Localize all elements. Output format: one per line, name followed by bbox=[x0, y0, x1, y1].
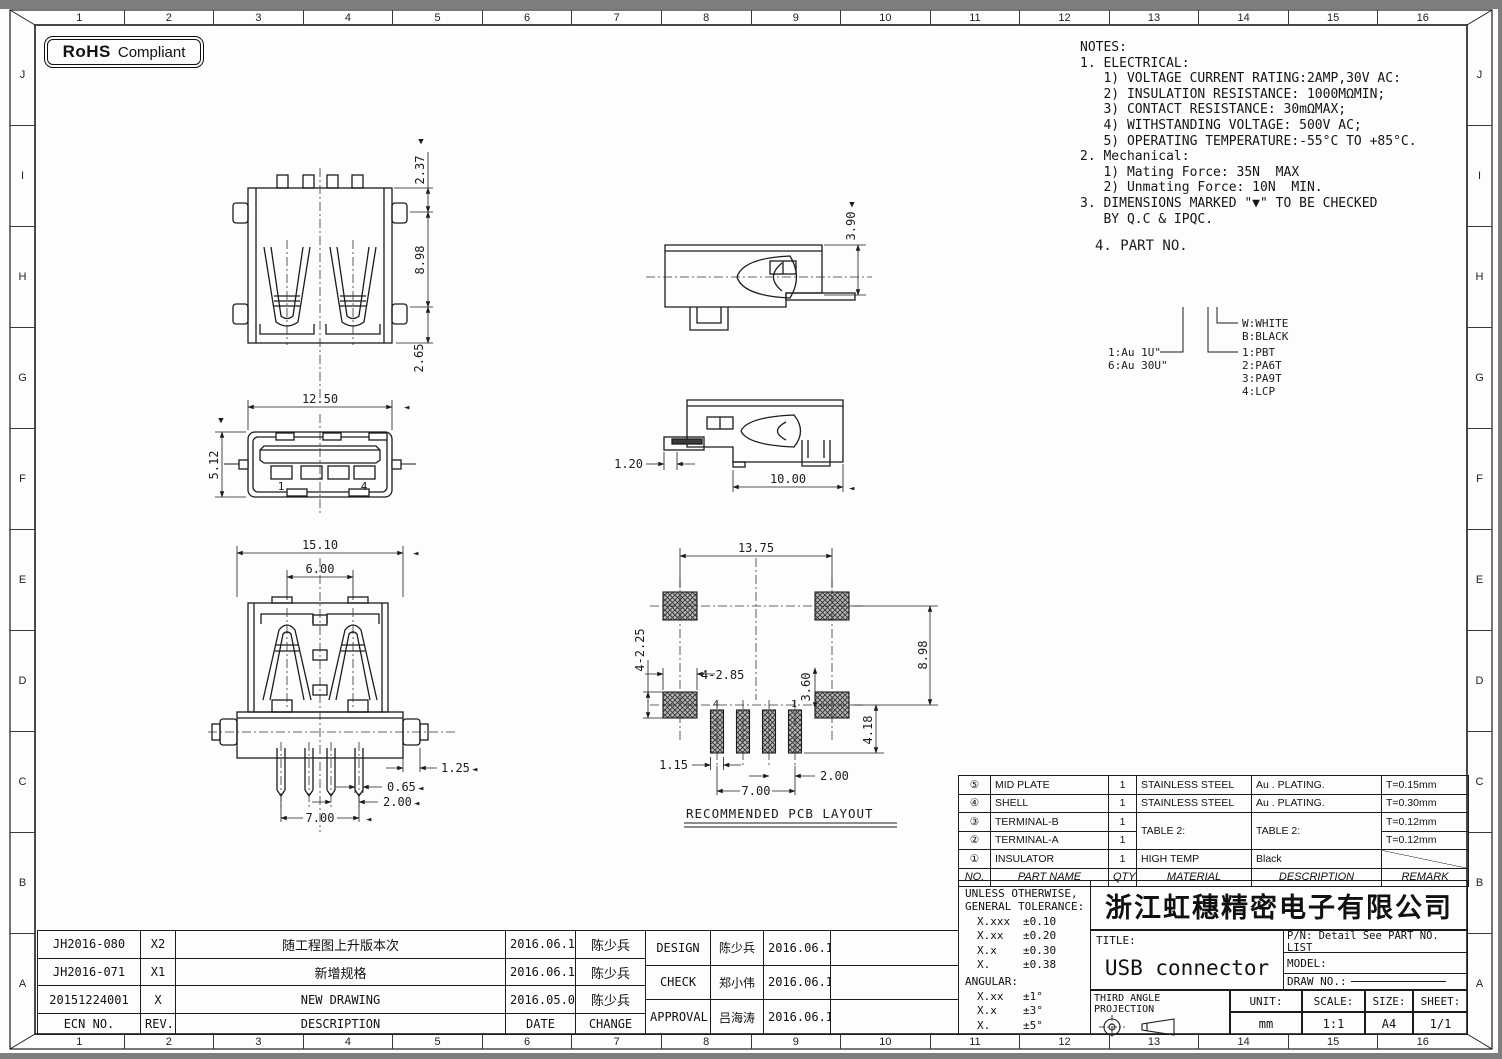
grid-ruler-top: 12345678910111213141516 bbox=[35, 10, 1467, 25]
bom-material-merged: TABLE 2: bbox=[1137, 813, 1252, 850]
pcb-centerlines bbox=[650, 558, 866, 766]
company-name: 浙江虹穗精密电子有限公司 bbox=[1090, 880, 1468, 930]
grid-row-label: G bbox=[10, 328, 35, 429]
dim-6-00: 6.00 bbox=[306, 562, 335, 576]
grid-col-label: 13 bbox=[1110, 10, 1200, 25]
view-front: 1 4 12.50 ◄ 5.12 ▼ bbox=[195, 388, 445, 520]
grid-col-label: 8 bbox=[662, 10, 752, 25]
side-mid-body bbox=[664, 400, 843, 467]
rev-header-ecn: ECN NO. bbox=[38, 1014, 141, 1035]
table-row: ③ TERMINAL-B 1 TABLE 2: TABLE 2: T=0.12m… bbox=[959, 813, 1469, 832]
grid-col-label: 9 bbox=[752, 1034, 842, 1049]
grid-row-label: C bbox=[1467, 732, 1492, 833]
grid-row-label: I bbox=[10, 126, 35, 227]
tol-label: X.x bbox=[977, 1004, 1023, 1017]
dim-1-25: 1.25 bbox=[441, 761, 470, 775]
rev-ecn: JH2016-080 bbox=[38, 931, 141, 959]
grid-col-label: 1 bbox=[35, 1034, 125, 1049]
approval-role: CHECK bbox=[646, 965, 711, 1000]
grid-col-label: 4 bbox=[304, 10, 394, 25]
sheet-label: SHEET: bbox=[1413, 990, 1468, 1012]
revision-table: JH2016-080 X2 随工程图上升版本次 2016.06.15 陈少兵 J… bbox=[37, 930, 646, 1035]
bom-no: ② bbox=[959, 831, 991, 850]
notes-block: NOTES:1. ELECTRICAL: 1) VOLTAGE CURRENT … bbox=[1080, 40, 1480, 227]
side-top-dim-lines bbox=[824, 245, 866, 295]
grid-col-label: 7 bbox=[572, 10, 662, 25]
bom-part: TERMINAL-B bbox=[991, 813, 1109, 832]
dim-2-65: 2.65 bbox=[412, 344, 426, 373]
grid-row-label: H bbox=[10, 227, 35, 328]
tolerance-row: X.x±3° bbox=[977, 1004, 1090, 1017]
note-line: 1. ELECTRICAL: bbox=[1080, 56, 1480, 72]
legend-material-pbt: 1:PBT bbox=[1242, 346, 1275, 359]
tol-value: ±0.30 bbox=[1023, 944, 1056, 957]
rev-header-change: CHANGE bbox=[576, 1014, 646, 1035]
rev-change: 陈少兵 bbox=[576, 986, 646, 1014]
grid-col-label: 2 bbox=[125, 10, 215, 25]
table-row: 20151224001 X NEW DRAWING 2016.05.05 陈少兵 bbox=[38, 986, 646, 1014]
side-top-body bbox=[665, 245, 855, 330]
dim-15-10: 15.10 bbox=[302, 538, 338, 552]
rev-change: 陈少兵 bbox=[576, 931, 646, 959]
dim-10-00: 10.00 bbox=[770, 472, 806, 486]
table-row: DESIGN 陈少兵 2016.06.15 bbox=[646, 931, 959, 966]
unit-label: UNIT: bbox=[1230, 990, 1302, 1012]
pin1-label: 1 bbox=[278, 480, 285, 493]
grid-row-label: D bbox=[10, 631, 35, 732]
view-bottom: 15.10 ◄ 6.00 1.25 ◄ 0.65 ◄ 2.00 ◄ 7.00 ◄ bbox=[195, 540, 480, 835]
grid-col-label: 9 bbox=[752, 10, 842, 25]
tol-value: ±1° bbox=[1023, 990, 1043, 1003]
grid-col-label: 4 bbox=[304, 1034, 394, 1049]
tolerance-row: X.xx±0.20 bbox=[977, 929, 1090, 942]
bom-remark: T=0.12mm bbox=[1382, 831, 1469, 850]
bom-no: ③ bbox=[959, 813, 991, 832]
side-mid-dim-lines bbox=[646, 452, 843, 492]
dim-2-37: 2.37 bbox=[413, 156, 427, 185]
grid-col-label: 11 bbox=[931, 10, 1021, 25]
approval-date: 2016.06.15 bbox=[764, 931, 831, 966]
bom-qty: 1 bbox=[1109, 794, 1137, 813]
tolerance-row: X.x±0.30 bbox=[977, 944, 1090, 957]
dim-2-00-pcb: 2.00 bbox=[820, 769, 849, 783]
grid-col-label: 3 bbox=[214, 1034, 304, 1049]
rev-ecn: 20151224001 bbox=[38, 986, 141, 1014]
rev-ecn: JH2016-071 bbox=[38, 958, 141, 986]
grid-col-label: 8 bbox=[662, 1034, 752, 1049]
rev-date: 2016.05.05 bbox=[506, 986, 576, 1014]
grid-col-label: 16 bbox=[1378, 1034, 1467, 1049]
note-line: 3) CONTACT RESISTANCE: 30mΩMAX; bbox=[1080, 102, 1480, 118]
rev-date: 2016.06.10 bbox=[506, 958, 576, 986]
check-mark: ◄ bbox=[418, 784, 424, 794]
top-view-centerlines bbox=[287, 168, 353, 398]
tolerance-line1: UNLESS OTHERWISE, bbox=[965, 887, 1090, 900]
table-row: ① INSULATOR 1 HIGH TEMP Black bbox=[959, 850, 1469, 869]
grid-col-label: 5 bbox=[393, 10, 483, 25]
approval-table: DESIGN 陈少兵 2016.06.15 CHECK 郑小伟 2016.06.… bbox=[645, 930, 959, 1035]
tolerance-row: X.±5° bbox=[977, 1019, 1090, 1032]
check-mark: ◄ bbox=[404, 403, 410, 413]
dim-3-90: 3.90 bbox=[844, 212, 858, 241]
revision-header-row: ECN NO. REV. DESCRIPTION DATE CHANGE bbox=[38, 1014, 646, 1035]
part-number-legend: 4. PART NO. 1:Au 1U" 6:Au 30U" W:WHITE B… bbox=[1090, 235, 1480, 410]
tol-label: X.xxx bbox=[977, 915, 1023, 928]
legend-material-pa6t: 2:PA6T bbox=[1242, 359, 1282, 372]
rev-date: 2016.06.15 bbox=[506, 931, 576, 959]
grid-row-label: E bbox=[10, 530, 35, 631]
bom-part: MID PLATE bbox=[991, 776, 1109, 795]
grid-row-label: F bbox=[10, 429, 35, 530]
rev-rev: X bbox=[141, 986, 176, 1014]
check-mark: ◄ bbox=[472, 765, 478, 775]
size-label: SIZE: bbox=[1365, 990, 1413, 1012]
rev-rev: X1 bbox=[141, 958, 176, 986]
tol-value: ±3° bbox=[1023, 1004, 1043, 1017]
table-row: CHECK 郑小伟 2016.06.15 bbox=[646, 965, 959, 1000]
draw-no-cell: DRAW NO.: bbox=[1283, 973, 1468, 990]
rev-header-rev: REV. bbox=[141, 1014, 176, 1035]
part-number-cell: P/N: Detail See PART NO. LIST bbox=[1283, 930, 1468, 953]
approval-name: 吕海涛 bbox=[711, 1000, 764, 1035]
legend-plating-2: 6:Au 30U" bbox=[1108, 359, 1168, 372]
sheet-value: 1/1 bbox=[1413, 1012, 1468, 1035]
engineering-drawing-sheet: { "badge": {"rohs": "RoHS", "compliant":… bbox=[0, 0, 1502, 1059]
bom-part: TERMINAL-A bbox=[991, 831, 1109, 850]
tol-value: ±0.38 bbox=[1023, 958, 1056, 971]
bom-desc: Black bbox=[1252, 850, 1382, 869]
check-mark: ◄ bbox=[366, 815, 372, 825]
draw-no-blank-line bbox=[1351, 981, 1446, 982]
table-row: ⑤ MID PLATE 1 STAINLESS STEEL Au . PLATI… bbox=[959, 776, 1469, 795]
part-no-heading: 4. PART NO. bbox=[1095, 238, 1188, 254]
table-row: JH2016-080 X2 随工程图上升版本次 2016.06.15 陈少兵 bbox=[38, 931, 646, 959]
tol-label: X. bbox=[977, 1019, 1023, 1032]
pcb-title-underline bbox=[684, 823, 897, 827]
bom-material: HIGH TEMP bbox=[1137, 850, 1252, 869]
check-mark: ▼ bbox=[418, 137, 424, 147]
grid-col-label: 6 bbox=[483, 10, 573, 25]
note-line: 5) OPERATING TEMPERATURE:-55°C TO +85°C. bbox=[1080, 134, 1480, 150]
table-row: APPROVAL 吕海涛 2016.06.15 bbox=[646, 1000, 959, 1035]
grid-row-label: B bbox=[10, 833, 35, 934]
bom-remark: T=0.30mm bbox=[1382, 794, 1469, 813]
pcb-layout-title: RECOMMENDED PCB LAYOUT bbox=[686, 806, 874, 821]
bom-no: ① bbox=[959, 850, 991, 869]
rohs-badge-inner-border bbox=[47, 39, 201, 65]
dim-5-12: 5.12 bbox=[207, 451, 221, 480]
note-line: 1) Mating Force: 35N MAX bbox=[1080, 165, 1480, 181]
bom-qty: 1 bbox=[1109, 850, 1137, 869]
grid-col-label: 1 bbox=[35, 10, 125, 25]
tolerance-line2: GENERAL TOLERANCE: bbox=[965, 900, 1090, 913]
grid-row-label: B bbox=[1467, 833, 1492, 934]
approval-empty bbox=[831, 1000, 959, 1035]
grid-col-label: 12 bbox=[1020, 10, 1110, 25]
grid-row-label: A bbox=[10, 934, 35, 1034]
dim-4-2-85: 4-2.85 bbox=[701, 668, 744, 682]
legend-color-white: W:WHITE bbox=[1242, 317, 1288, 330]
note-line: 2) INSULATION RESISTANCE: 1000MΩMIN; bbox=[1080, 87, 1480, 103]
table-row: ④ SHELL 1 STAINLESS STEEL Au . PLATING. … bbox=[959, 794, 1469, 813]
note-line: BY Q.C & IPQC. bbox=[1080, 212, 1480, 228]
approval-role: APPROVAL bbox=[646, 1000, 711, 1035]
view-side-top: ▼ 3.90 bbox=[640, 185, 890, 335]
pcb-pin1-label: 1 bbox=[791, 699, 797, 710]
dim-1-20: 1.20 bbox=[614, 457, 643, 471]
projection-label: THIRD ANGLE PROJECTION bbox=[1094, 993, 1226, 1015]
rev-change: 陈少兵 bbox=[576, 958, 646, 986]
draw-no-label: DRAW NO.: bbox=[1287, 975, 1347, 988]
approval-name: 郑小伟 bbox=[711, 965, 764, 1000]
dim-1-15: 1.15 bbox=[659, 758, 688, 772]
note-line: 3. DIMENSIONS MARKED "▼" TO BE CHECKED bbox=[1080, 196, 1480, 212]
tolerance-row: X.xx±1° bbox=[977, 990, 1090, 1003]
tol-label: X.xx bbox=[977, 990, 1023, 1003]
legend-material-lcp: 4:LCP bbox=[1242, 385, 1275, 398]
bom-desc: Au . PLATING. bbox=[1252, 794, 1382, 813]
bom-desc: Au . PLATING. bbox=[1252, 776, 1382, 795]
grid-col-label: 2 bbox=[125, 1034, 215, 1049]
check-mark: ◄ bbox=[413, 549, 419, 559]
pcb-pin4-label: 4 bbox=[713, 699, 719, 710]
bom-remark: T=0.12mm bbox=[1382, 813, 1469, 832]
dim-2-00: 2.00 bbox=[383, 795, 412, 809]
dim-4-18: 4.18 bbox=[861, 716, 875, 745]
rev-desc: NEW DRAWING bbox=[176, 986, 506, 1014]
approval-name: 陈少兵 bbox=[711, 931, 764, 966]
grid-row-label: A bbox=[1467, 934, 1492, 1034]
dim-8-98-pcb: 8.98 bbox=[916, 641, 930, 670]
bom-no: ⑤ bbox=[959, 776, 991, 795]
bom-part: SHELL bbox=[991, 794, 1109, 813]
view-pcb-layout: 13.75 4-2.25 4-2.85 8.98 3.60 4.18 1.15 … bbox=[630, 545, 960, 835]
check-mark: ◄ bbox=[849, 484, 855, 494]
view-side-mid: 1.20 10.00 ◄ bbox=[618, 388, 898, 518]
unit-value: mm bbox=[1230, 1012, 1302, 1035]
legend-color-black: B:BLACK bbox=[1242, 330, 1289, 343]
dim-7-00: 7.00 bbox=[306, 811, 335, 825]
note-line: 2) Unmating Force: 10N MIN. bbox=[1080, 180, 1480, 196]
rev-header-date: DATE bbox=[506, 1014, 576, 1035]
grid-col-label: 7 bbox=[572, 1034, 662, 1049]
size-value: A4 bbox=[1365, 1012, 1413, 1035]
tol-label: X. bbox=[977, 958, 1023, 971]
tol-value: ±0.20 bbox=[1023, 929, 1056, 942]
third-angle-projection-icon bbox=[1094, 1015, 1184, 1039]
tolerance-block: UNLESS OTHERWISE, GENERAL TOLERANCE: X.x… bbox=[958, 880, 1091, 1035]
projection-cell: THIRD ANGLE PROJECTION bbox=[1090, 990, 1230, 1035]
grid-col-label: 15 bbox=[1289, 10, 1379, 25]
note-line: 2. Mechanical: bbox=[1080, 149, 1480, 165]
scale-value: 1:1 bbox=[1302, 1012, 1365, 1035]
approval-role: DESIGN bbox=[646, 931, 711, 966]
bom-qty: 1 bbox=[1109, 813, 1137, 832]
tolerance-row: X.±0.38 bbox=[977, 958, 1090, 971]
rohs-badge: RoHS Compliant bbox=[44, 36, 204, 68]
rev-desc: 新增规格 bbox=[176, 958, 506, 986]
dim-8-98: 8.98 bbox=[413, 246, 427, 275]
check-mark: ▼ bbox=[849, 200, 855, 210]
bom-qty: 1 bbox=[1109, 776, 1137, 795]
approval-empty bbox=[831, 931, 959, 966]
grid-row-label: D bbox=[1467, 631, 1492, 732]
legend-tree-lines bbox=[1160, 307, 1238, 352]
view-top: ▼ 2.37 8.98 2.65 bbox=[190, 118, 450, 398]
legend-material-pa9t: 3:PA9T bbox=[1242, 372, 1282, 385]
grid-row-label: C bbox=[10, 732, 35, 833]
approval-date: 2016.06.15 bbox=[764, 1000, 831, 1035]
model-cell: MODEL: bbox=[1283, 952, 1468, 974]
bom-table: ⑤ MID PLATE 1 STAINLESS STEEL Au . PLATI… bbox=[958, 775, 1469, 887]
dim-13-75: 13.75 bbox=[738, 541, 774, 555]
bom-material: STAINLESS STEEL bbox=[1137, 794, 1252, 813]
check-mark: ▼ bbox=[218, 416, 224, 426]
grid-ruler-left: JIHGFEDCBA bbox=[10, 25, 35, 1034]
approval-date: 2016.06.15 bbox=[764, 965, 831, 1000]
grid-ruler-bottom: 12345678910111213141516 bbox=[35, 1034, 1467, 1049]
tol-label: X.x bbox=[977, 944, 1023, 957]
table-row: JH2016-071 X1 新增规格 2016.06.10 陈少兵 bbox=[38, 958, 646, 986]
bom-remark: T=0.15mm bbox=[1382, 776, 1469, 795]
bom-material: STAINLESS STEEL bbox=[1137, 776, 1252, 795]
grid-row-label: F bbox=[1467, 429, 1492, 530]
dim-7-00-pcb: 7.00 bbox=[742, 784, 771, 798]
grid-col-label: 16 bbox=[1378, 10, 1467, 25]
grid-col-label: 14 bbox=[1199, 10, 1289, 25]
bom-part: INSULATOR bbox=[991, 850, 1109, 869]
approval-empty bbox=[831, 965, 959, 1000]
tol-label: X.xx bbox=[977, 929, 1023, 942]
title-label: TITLE: bbox=[1096, 934, 1278, 947]
note-line: NOTES: bbox=[1080, 40, 1480, 56]
tol-value: ±0.10 bbox=[1023, 915, 1056, 928]
note-line: 4) WITHSTANDING VOLTAGE: 500V AC; bbox=[1080, 118, 1480, 134]
grid-col-label: 6 bbox=[483, 1034, 573, 1049]
rev-rev: X2 bbox=[141, 931, 176, 959]
grid-row-label: J bbox=[10, 25, 35, 126]
dim-0-65: 0.65 bbox=[387, 780, 416, 794]
scale-label: SCALE: bbox=[1302, 990, 1365, 1012]
grid-col-label: 11 bbox=[931, 1034, 1021, 1049]
pin4-label: 4 bbox=[361, 480, 368, 493]
grid-col-label: 15 bbox=[1289, 1034, 1379, 1049]
bom-qty: 1 bbox=[1109, 831, 1137, 850]
bom-desc-merged: TABLE 2: bbox=[1252, 813, 1382, 850]
bom-no: ④ bbox=[959, 794, 991, 813]
grid-col-label: 3 bbox=[214, 10, 304, 25]
legend-plating-1: 1:Au 1U" bbox=[1108, 346, 1161, 359]
title-cell: TITLE: USB connector bbox=[1090, 930, 1284, 990]
tolerance-row: X.xxx±0.10 bbox=[977, 915, 1090, 928]
rev-header-desc: DESCRIPTION bbox=[176, 1014, 506, 1035]
grid-col-label: 10 bbox=[841, 10, 931, 25]
grid-col-label: 10 bbox=[841, 1034, 931, 1049]
angular-heading: ANGULAR: bbox=[965, 975, 1090, 988]
note-line: 1) VOLTAGE CURRENT RATING:2AMP,30V AC: bbox=[1080, 71, 1480, 87]
drawing-title: USB connector bbox=[1096, 956, 1278, 980]
check-mark: ◄ bbox=[414, 799, 420, 809]
dim-4-2-25: 4-2.25 bbox=[633, 628, 647, 671]
dim-3-60: 3.60 bbox=[799, 673, 813, 702]
bom-remark-slash bbox=[1382, 850, 1469, 869]
dim-12-50: 12.50 bbox=[302, 392, 338, 406]
rev-desc: 随工程图上升版本次 bbox=[176, 931, 506, 959]
grid-row-label: E bbox=[1467, 530, 1492, 631]
tol-value: ±5° bbox=[1023, 1019, 1043, 1032]
grid-col-label: 5 bbox=[393, 1034, 483, 1049]
